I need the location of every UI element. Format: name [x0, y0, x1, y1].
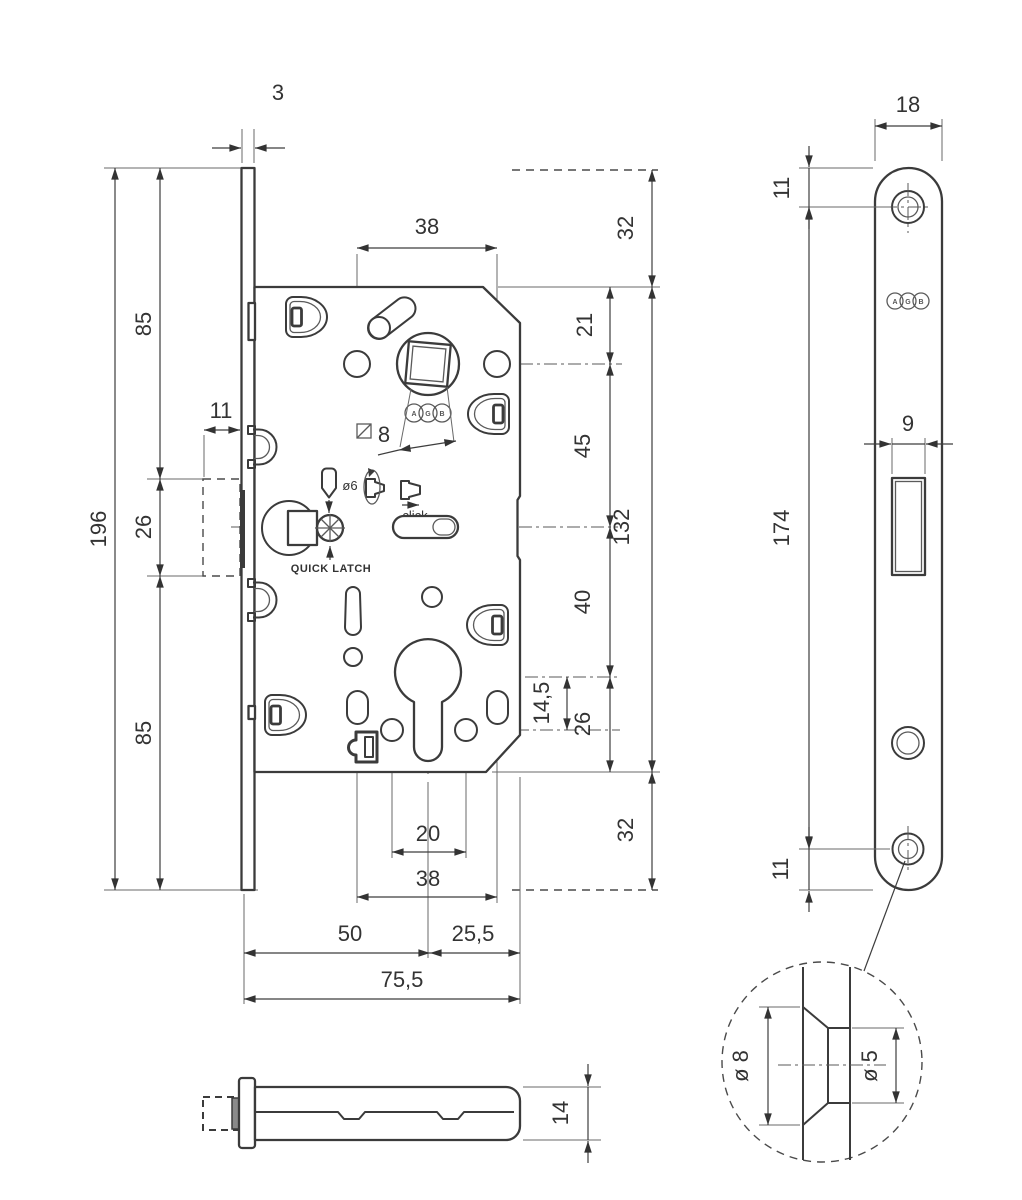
- dim-below-case: 32: [613, 818, 638, 842]
- logo-letter: A: [411, 411, 416, 418]
- dim-strike-to-bottom: 85: [131, 721, 156, 745]
- svg-text:8: 8: [378, 422, 390, 447]
- dim-faceplate-width: 18: [896, 92, 920, 117]
- dim-case-height: 132: [609, 509, 634, 546]
- lock-technical-drawing: A G B ø6 click: [0, 0, 1022, 1200]
- dim-screw-centers: 174: [769, 510, 794, 547]
- dim-cylinder-to-case-bottom: 26: [570, 712, 595, 736]
- faceplate-side-view: A G B 18 11 174 11: [768, 92, 953, 971]
- dim-latch-window-width: 9: [902, 411, 914, 436]
- latch-bolt-side-view: 14: [203, 1064, 601, 1163]
- dim-faceplate-height: 196: [86, 511, 111, 548]
- bolt-flange: [239, 1078, 255, 1148]
- dim-backset: 50: [338, 921, 362, 946]
- dim-strike-height: 26: [131, 515, 156, 539]
- dim-cylinder-to-screws: 14,5: [529, 682, 554, 725]
- dim-strike-depth: 11: [210, 398, 233, 423]
- logo-letter: B: [439, 411, 444, 418]
- dim-top-to-strike: 85: [131, 312, 156, 336]
- dim-slots-spacing: 38: [416, 866, 440, 891]
- pin-diameter-label: ø6: [342, 478, 357, 493]
- dim-cylinder-to-case-edge: 25,5: [452, 921, 495, 946]
- logo-letter: A: [892, 299, 897, 306]
- dim-screw-to-bottom: 11: [768, 858, 793, 881]
- dim-magnet-to-cylinder: 40: [570, 590, 595, 614]
- countersink-profile: [803, 1007, 850, 1125]
- dim-countersink-outer: ø 8: [728, 1050, 753, 1082]
- dim-above-case: 32: [613, 216, 638, 240]
- faceplate-outline: [875, 168, 942, 890]
- countersink-detail-view: ø 8 ø 5: [722, 962, 922, 1162]
- bolt-body: [255, 1087, 520, 1140]
- dim-cylinder-screws-spacing: 20: [416, 821, 440, 846]
- logo-letter: G: [905, 299, 911, 306]
- technical-drawing-page: A G B ø6 click: [0, 0, 1022, 1200]
- dim-hub-to-magnet: 45: [570, 434, 595, 458]
- dim-handle-screws-spacing: 38: [415, 214, 439, 239]
- magnet-bolt-slot: [393, 516, 458, 538]
- logo-letter: G: [425, 411, 431, 418]
- dim-top-to-screw: 11: [769, 177, 794, 200]
- front-view: A G B ø6 click: [86, 80, 660, 1004]
- dim-case-depth: 75,5: [381, 967, 424, 992]
- logo-letter: B: [918, 299, 923, 306]
- dim-case-top-to-hub: 21: [572, 313, 597, 337]
- dim-bolt-height: 14: [548, 1101, 573, 1125]
- dim-hole-diameter: ø 5: [857, 1050, 882, 1082]
- dim-faceplate-thickness: 3: [272, 80, 284, 105]
- quick-latch-label: QUICK LATCH: [291, 563, 371, 575]
